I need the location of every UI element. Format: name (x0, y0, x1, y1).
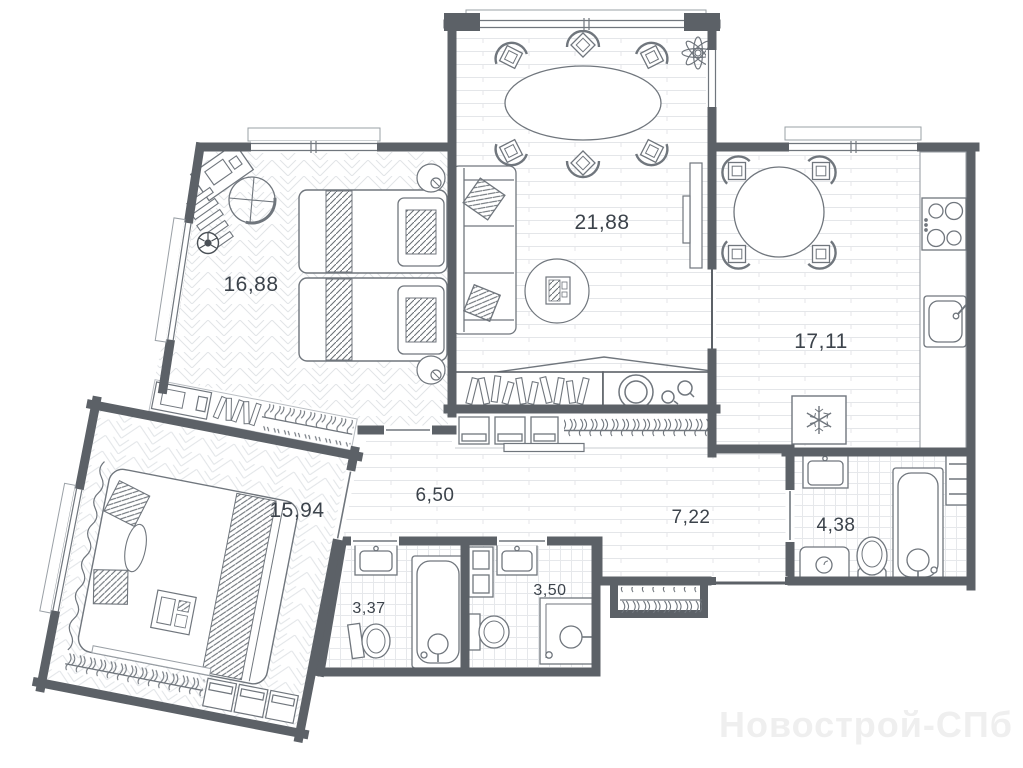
hall-closet (455, 417, 710, 452)
label-living-dining: 21,88 (574, 211, 629, 234)
washbasin-icon (803, 453, 848, 488)
window-sill (785, 127, 921, 140)
bathtub-icon (412, 556, 464, 668)
wall-lamp-icon (417, 356, 445, 384)
sliding-door (504, 444, 584, 452)
dining-set (491, 31, 671, 177)
kitchen-sink-icon (924, 296, 966, 347)
kitchen-window-icon (789, 141, 917, 153)
bathtub-icon (893, 468, 943, 582)
dining-table-icon (505, 66, 661, 140)
label-bedroom-bottom-left: 15,94 (269, 499, 324, 522)
single-bed-icon (299, 190, 447, 273)
window-sill (248, 128, 380, 141)
window-sill (466, 10, 706, 19)
door-bath-big (786, 490, 795, 542)
wall-corner (444, 13, 480, 31)
label-kitchen: 17,11 (794, 330, 848, 353)
fridge-icon (792, 396, 846, 444)
bath-cabinet (469, 547, 493, 597)
floor-plan-canvas: 16,88 21,88 17,11 15,94 6,50 7,22 4,38 3… (0, 0, 1023, 768)
sofa-icon (452, 166, 516, 334)
floor-plan: 16,88 21,88 17,11 15,94 6,50 7,22 4,38 3… (0, 0, 1023, 768)
label-hall-right: 7,22 (672, 507, 711, 528)
washbasin-icon (355, 543, 397, 575)
watermark: Новострой-СПб (719, 704, 1013, 746)
door-shower-room (497, 537, 547, 546)
soccer-ball-icon (198, 233, 219, 254)
wall-corner (684, 13, 720, 31)
rug-coffee-table (525, 259, 589, 323)
door-bath-small (351, 537, 399, 546)
label-bathroom-big: 4,38 (817, 515, 856, 536)
toilet-icon (469, 614, 509, 650)
label-bathroom-small: 3,37 (352, 600, 385, 617)
single-bed-icon (299, 278, 447, 361)
closet-cabinets (459, 417, 558, 444)
bay-top-window-icon (472, 18, 700, 30)
door-bedroom1 (384, 426, 432, 435)
label-shower-room: 3,50 (533, 582, 566, 599)
bedroom1-window-icon (251, 141, 377, 153)
entry-door (709, 577, 792, 586)
label-bedroom-top-left: 16,88 (223, 273, 278, 296)
toilet-icon (857, 537, 887, 582)
stove-icon (922, 198, 966, 250)
toilet-icon (348, 623, 390, 658)
bay-side-window-icon (706, 50, 718, 107)
kitchen-table-icon (734, 167, 824, 257)
entry-closet (620, 587, 702, 613)
label-hall-left: 6,50 (416, 485, 455, 506)
wall-lamp-icon (417, 164, 445, 192)
tv-cabinet-icon (151, 590, 197, 635)
shower-cabin-icon (540, 598, 598, 664)
washbasin-icon (497, 543, 537, 575)
